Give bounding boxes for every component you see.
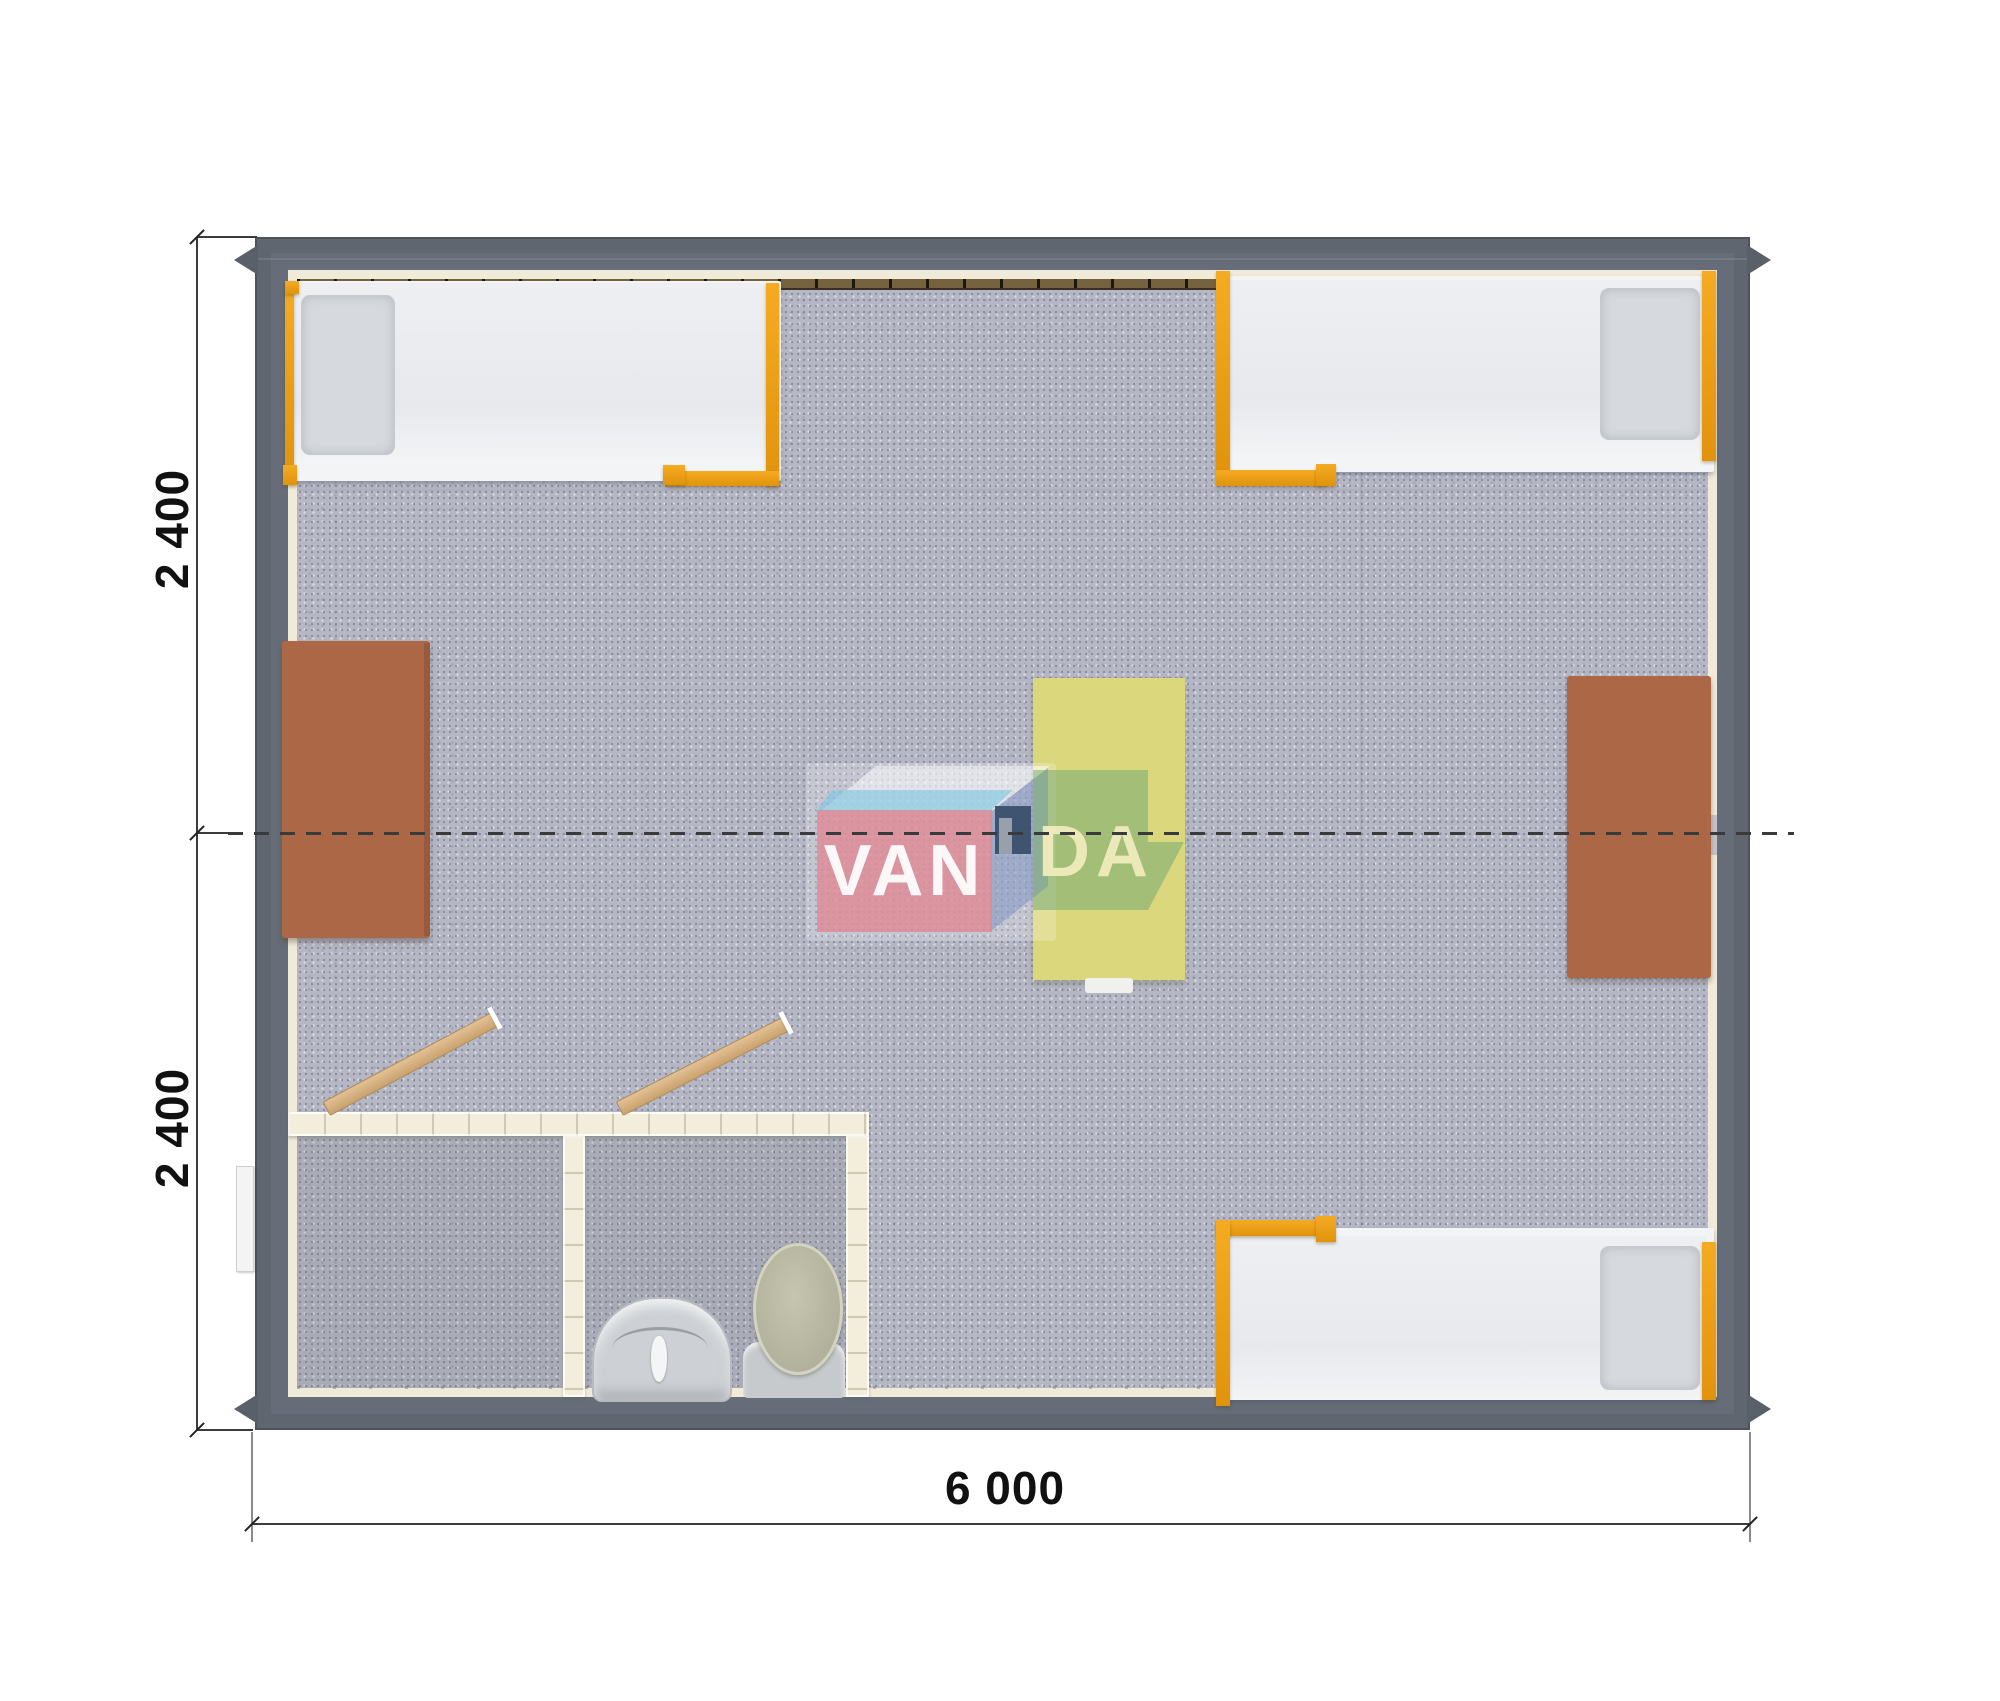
wall-highlight-line — [255, 258, 1750, 260]
dimension-line-horizontal — [252, 1523, 1751, 1525]
floor-seam — [297, 489, 1708, 491]
bed-bottom-right-frame-head — [1216, 1220, 1326, 1236]
bed-bottom-right-frame-right — [1702, 1242, 1716, 1400]
exterior-door-leaf — [236, 1166, 254, 1272]
bed-top-left-frame-corner — [285, 281, 299, 294]
bed-top-left-frame-stub — [663, 465, 685, 485]
bed-top-right-pillow — [1600, 288, 1700, 440]
desk-left — [282, 641, 430, 938]
dimension-extension-top — [197, 236, 257, 238]
bed-top-right-frame-left — [1216, 271, 1230, 471]
bathroom-wall-right — [846, 1136, 869, 1397]
bed-top-right-frame-foot — [1216, 470, 1326, 486]
center-table — [1033, 678, 1185, 980]
dimension-label-left-top: 2 400 — [147, 459, 197, 599]
dimension-extension-bottom — [197, 1429, 253, 1431]
bed-top-right-frame-right — [1702, 271, 1716, 461]
bed-top-right-frame-stub — [1316, 464, 1336, 486]
dimension-label-left-bottom: 2 400 — [147, 1058, 197, 1198]
bed-bottom-right-frame-left — [1216, 1220, 1230, 1406]
corner-casting-top-left — [234, 245, 258, 275]
bed-top-left-pillow — [301, 295, 395, 455]
bed-top-left-frame-corner-bl — [283, 465, 297, 485]
corner-casting-top-right — [1747, 245, 1771, 275]
corner-casting-bottom-right — [1747, 1394, 1771, 1424]
bed-top-left-frame-left — [285, 281, 294, 477]
floor-plan-page: VAN DA 2 400 2 400 6 000 — [0, 0, 2000, 1701]
bathroom-wall-divider — [563, 1136, 585, 1397]
desk-left-edge — [424, 643, 430, 936]
dimension-extension-middle — [197, 832, 231, 834]
center-table-foot — [1085, 978, 1133, 993]
bed-bottom-right-frame-stub — [1316, 1216, 1336, 1242]
sink-faucet — [651, 1336, 667, 1382]
toilet-lid — [753, 1243, 843, 1375]
dimension-label-bottom: 6 000 — [905, 1462, 1105, 1514]
corner-casting-bottom-left — [234, 1394, 258, 1424]
desk-right — [1567, 676, 1711, 978]
bathroom-wall-top — [288, 1112, 869, 1136]
bed-bottom-right-pillow — [1600, 1246, 1700, 1390]
module-centerline-dashed — [228, 832, 1794, 835]
bed-top-left-frame-right — [766, 283, 779, 486]
